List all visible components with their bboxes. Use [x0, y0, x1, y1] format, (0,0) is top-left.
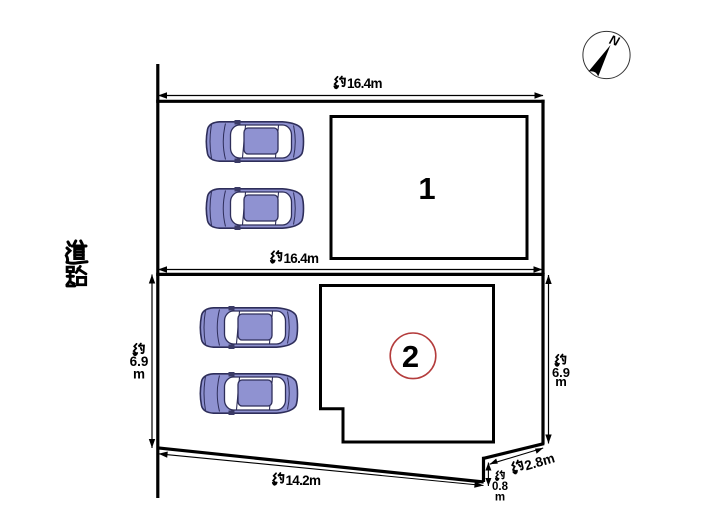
svg-text:16.4m: 16.4m: [284, 251, 319, 266]
svg-text:16.4m: 16.4m: [347, 76, 382, 91]
svg-text:m: m: [133, 367, 145, 382]
svg-text:m: m: [495, 492, 505, 504]
svg-text:m: m: [555, 374, 567, 389]
svg-text:1: 1: [418, 171, 435, 206]
svg-text:2: 2: [402, 339, 419, 374]
svg-text:14.2m: 14.2m: [286, 473, 321, 488]
